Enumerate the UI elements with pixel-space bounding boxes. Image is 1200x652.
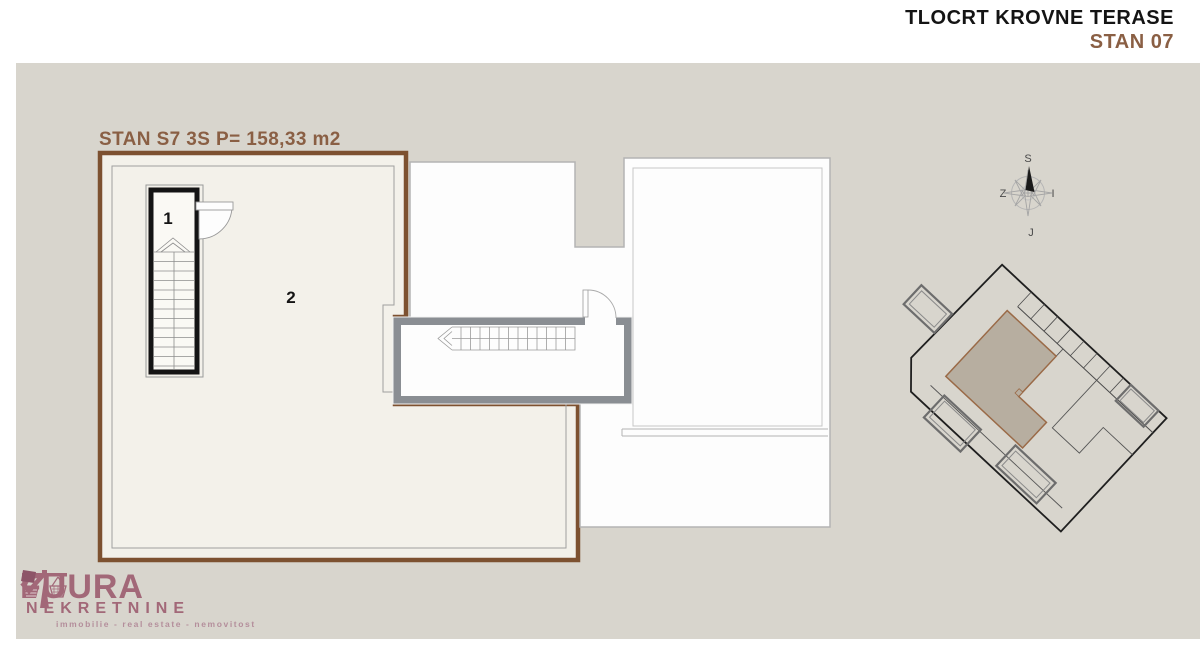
- page: 1 2 S J Z I: [0, 0, 1200, 652]
- stair-door-leaf: [196, 202, 233, 210]
- logo-wordmark: FU URA: [20, 570, 256, 604]
- apartment-area-label: STAN S7 3S P= 158,33 m2: [99, 129, 341, 151]
- logo-check-icon: [20, 570, 46, 596]
- floor-plan-drawing: 1 2 S J Z I: [0, 0, 1200, 652]
- compass-south-label: J: [1028, 227, 1034, 239]
- logo-text-ura: URA: [67, 570, 144, 604]
- compass-north-label: S: [1024, 153, 1031, 165]
- header: TLOCRT KROVNE TERASE STAN 07: [905, 7, 1174, 53]
- room-number-terrace: 2: [286, 288, 295, 307]
- page-title: TLOCRT KROVNE TERASE: [905, 7, 1174, 29]
- room-number-stair: 1: [163, 209, 172, 228]
- futura-logo: FU URA: [20, 570, 256, 629]
- page-subtitle: STAN 07: [905, 31, 1174, 53]
- compass-east-label: I: [1051, 188, 1054, 200]
- logo-tagline: immobilie - real estate - nemovitost: [56, 619, 256, 629]
- compass-west-label: Z: [1000, 188, 1007, 200]
- stairwell-door-leaf: [583, 290, 588, 317]
